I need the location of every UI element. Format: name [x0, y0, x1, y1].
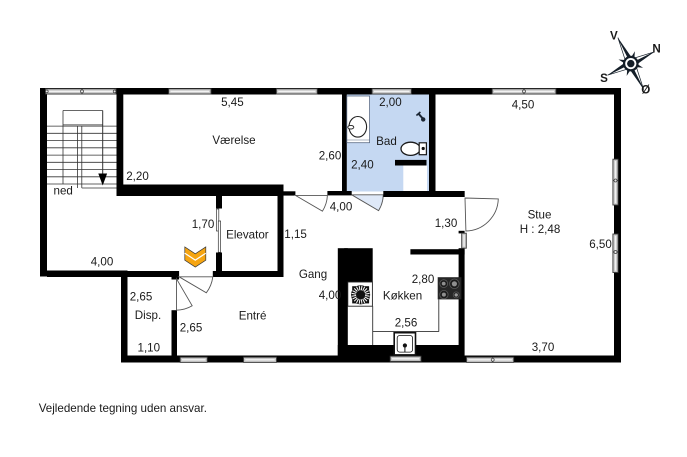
svg-text:2,40: 2,40 — [351, 158, 374, 171]
svg-text:4,00: 4,00 — [319, 289, 342, 302]
svg-text:Elevator: Elevator — [226, 229, 269, 242]
svg-text:V: V — [610, 30, 618, 43]
svg-text:Ø: Ø — [641, 84, 650, 97]
svg-text:2,80: 2,80 — [412, 273, 435, 286]
svg-text:S: S — [600, 72, 608, 85]
svg-text:Køkken: Køkken — [383, 290, 422, 303]
svg-text:4,00: 4,00 — [330, 201, 353, 214]
svg-text:Gang: Gang — [299, 268, 327, 281]
svg-text:H : 2,48: H : 2,48 — [520, 223, 561, 236]
svg-text:1,10: 1,10 — [138, 342, 161, 355]
svg-text:1,15: 1,15 — [284, 228, 307, 241]
svg-text:2,60: 2,60 — [319, 149, 342, 162]
svg-text:2,65: 2,65 — [130, 291, 153, 304]
svg-text:2,65: 2,65 — [180, 322, 203, 335]
svg-text:Disp.: Disp. — [135, 309, 161, 322]
svg-text:2,00: 2,00 — [379, 96, 402, 109]
svg-text:1,70: 1,70 — [192, 218, 215, 231]
svg-text:3,70: 3,70 — [532, 341, 555, 354]
svg-text:5,45: 5,45 — [221, 96, 244, 109]
svg-text:Stue: Stue — [528, 209, 552, 222]
svg-text:6,50: 6,50 — [589, 238, 612, 251]
svg-text:2,56: 2,56 — [395, 317, 418, 330]
svg-text:ned: ned — [54, 185, 73, 198]
svg-text:Værelse: Værelse — [212, 134, 255, 147]
svg-text:N: N — [652, 43, 660, 56]
svg-text:Entré: Entré — [239, 310, 267, 323]
svg-text:1,30: 1,30 — [435, 217, 458, 230]
svg-text:4,50: 4,50 — [512, 99, 535, 112]
svg-text:Bad: Bad — [376, 135, 397, 148]
svg-text:2,20: 2,20 — [126, 170, 149, 183]
svg-text:Vejledende tegning uden ansvar: Vejledende tegning uden ansvar. — [39, 402, 207, 415]
svg-text:4,00: 4,00 — [91, 255, 114, 268]
